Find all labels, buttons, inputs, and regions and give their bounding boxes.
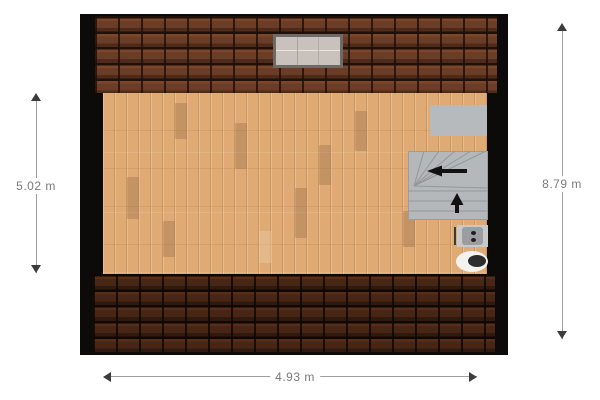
toilet-seat-icon: [468, 255, 486, 267]
built-in-cabinet: [430, 105, 487, 136]
floor-plan: [80, 14, 508, 355]
floor-texture-knot: [355, 111, 367, 151]
dimension-arrow-right-icon: [469, 372, 477, 382]
dimension-arrow-up-icon: [557, 23, 567, 31]
winder-staircase: [408, 151, 488, 220]
floor-texture-knot: [235, 123, 247, 169]
dimension-arrow-left-icon: [103, 372, 111, 382]
dimension-arrow-down-icon: [557, 331, 567, 339]
floor-texture-knot: [127, 177, 139, 219]
faucet-dot-icon: [471, 231, 476, 235]
dimension-arrow-down-icon: [31, 265, 41, 273]
floor-texture-knot: [175, 103, 187, 139]
washbasin-icon: [462, 227, 483, 245]
stair-direction-up-arrow-icon: [451, 193, 464, 213]
dimension-label-left: 5.02 m: [11, 178, 61, 194]
faucet-dot-icon: [471, 238, 476, 242]
floor-texture-knot: [259, 231, 271, 263]
floor-plan-canvas: 5.02 m 8.79 m 4.93 m: [0, 0, 600, 400]
floor-texture-knot: [319, 145, 331, 185]
floor-texture-knot: [163, 221, 175, 257]
floor-texture-knot: [295, 188, 307, 238]
staircase-drawing: [408, 151, 488, 220]
dimension-label-bottom: 4.93 m: [270, 369, 320, 385]
dimension-label-right: 8.79 m: [537, 176, 587, 192]
dimension-arrow-up-icon: [31, 93, 41, 101]
roof-section-bottom: [93, 274, 495, 352]
bath-partition-line: [454, 227, 456, 245]
skylight-window: [273, 34, 343, 68]
